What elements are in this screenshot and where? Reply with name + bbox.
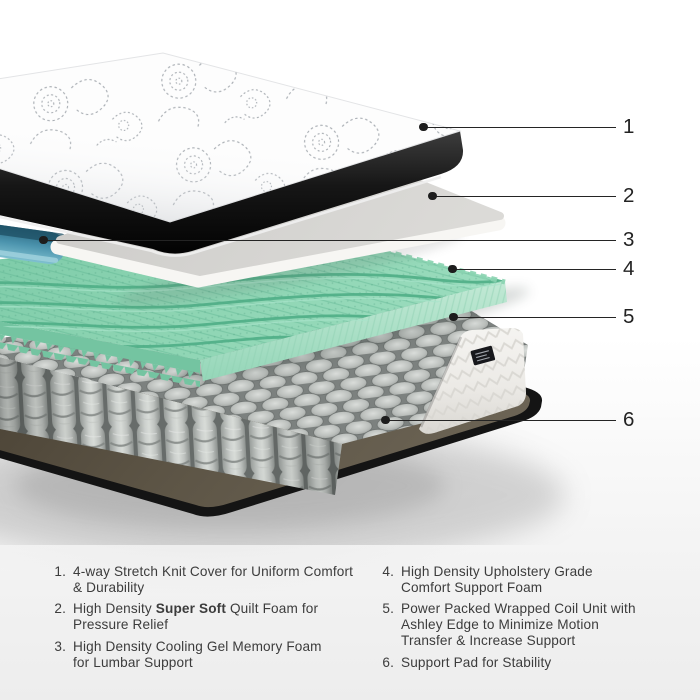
callout-dot	[428, 192, 437, 201]
legend-text: Power Packed Wrapped Coil Unit with	[401, 601, 636, 616]
callout-3: 3	[41, 240, 616, 241]
callout-number: 6	[623, 410, 634, 431]
legend-item-6: 6. Support Pad for Stability	[374, 655, 679, 671]
callout-dot	[449, 313, 458, 322]
legend-text: Pressure Relief	[73, 617, 168, 632]
legend-number: 5.	[374, 601, 394, 648]
legend-item-5: 5. Power Packed Wrapped Coil Unit with A…	[374, 601, 679, 648]
legend-text-bold: Super Soft	[156, 601, 226, 616]
callout-dot	[39, 236, 48, 245]
legend-number: 4.	[374, 564, 394, 595]
callout-5: 5	[451, 317, 616, 318]
callout-dot	[381, 416, 390, 425]
legend-text: Transfer & Increase Support	[401, 633, 575, 648]
legend-item-2: 2. High Density Super Soft Quilt Foam fo…	[46, 601, 368, 632]
legend-text: & Durability	[73, 580, 144, 595]
legend-number: 2.	[46, 601, 66, 632]
legend-text: Ashley Edge to Minimize Motion	[401, 617, 599, 632]
callout-number: 3	[623, 230, 634, 251]
callout-dot	[448, 265, 457, 274]
legend-number: 3.	[46, 639, 66, 670]
callout-4: 4	[450, 269, 616, 270]
legend-text: High Density Cooling Gel Memory Foam	[73, 639, 322, 654]
legend-column-left: 1. 4-way Stretch Knit Cover for Uniform …	[46, 564, 368, 676]
callout-number: 4	[623, 259, 634, 280]
legend-text: 4-way Stretch Knit Cover for Uniform Com…	[73, 564, 353, 579]
legend-number: 1.	[46, 564, 66, 595]
legend-item-1: 1. 4-way Stretch Knit Cover for Uniform …	[46, 564, 368, 595]
legend-text: High Density	[73, 601, 156, 616]
legend-item-3: 3. High Density Cooling Gel Memory Foam …	[46, 639, 368, 670]
legend-text: Support Pad for Stability	[401, 655, 551, 670]
callout-1: 1	[421, 127, 616, 128]
legend-column-right: 4. High Density Upholstery Grade Comfort…	[374, 564, 679, 676]
callout-2: 2	[430, 196, 616, 197]
callout-number: 2	[623, 186, 634, 207]
legend-text: High Density Upholstery Grade	[401, 564, 593, 579]
callout-number: 5	[623, 307, 634, 328]
mattress-layers-infographic: 1 2 3 4 5 6 1. 4-way Stretch Knit Cover …	[0, 0, 700, 700]
callout-dot	[419, 123, 428, 132]
legend-item-4: 4. High Density Upholstery Grade Comfort…	[374, 564, 679, 595]
legend-number: 6.	[374, 655, 394, 671]
mattress-illustration	[0, 0, 700, 545]
legend-text: Quilt Foam for	[226, 601, 318, 616]
legend-text: for Lumbar Support	[73, 655, 193, 670]
callout-number: 1	[623, 117, 634, 138]
legend-text: Comfort Support Foam	[401, 580, 542, 595]
callout-6: 6	[383, 420, 616, 421]
